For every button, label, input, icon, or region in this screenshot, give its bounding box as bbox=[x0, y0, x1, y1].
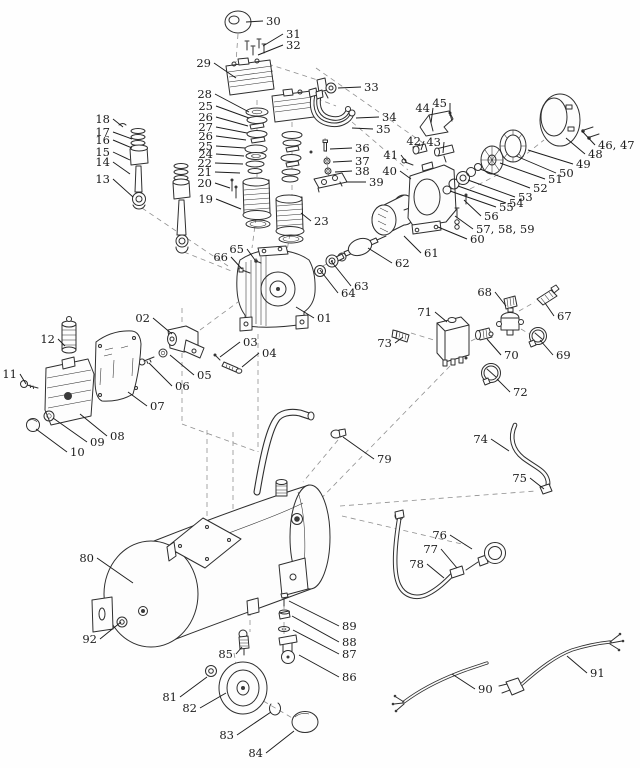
leader-line-70 bbox=[487, 339, 501, 355]
leader-line-10 bbox=[36, 429, 67, 452]
cylinder-head-2-drawing bbox=[272, 89, 314, 122]
part-label-28: 28 bbox=[197, 87, 212, 101]
part-label-44: 44 bbox=[415, 101, 430, 115]
leader-line-48 bbox=[566, 138, 585, 154]
part-label-77: 77 bbox=[423, 542, 438, 556]
leader-line-04 bbox=[242, 353, 259, 367]
motor-housing-drawing bbox=[408, 162, 456, 234]
leader-line-24 bbox=[216, 154, 244, 156]
leader-line-90 bbox=[452, 674, 475, 689]
leader-line-18 bbox=[113, 119, 123, 127]
part-label-29: 29 bbox=[196, 56, 211, 70]
part-label-88: 88 bbox=[342, 635, 357, 649]
outlet-tubes-drawing bbox=[309, 88, 355, 125]
leader-line-69 bbox=[540, 340, 553, 355]
part-label-83: 83 bbox=[219, 728, 234, 742]
leader-line-61 bbox=[404, 236, 421, 253]
part-label-74: 74 bbox=[473, 432, 488, 446]
leader-line-71 bbox=[435, 312, 447, 322]
leader-line-84 bbox=[266, 731, 294, 753]
cylinder-2-drawing bbox=[276, 195, 304, 243]
part-label-69: 69 bbox=[556, 348, 571, 362]
part-label-56: 56 bbox=[484, 209, 499, 223]
leader-line-28 bbox=[215, 94, 249, 112]
leader-line-31 bbox=[263, 34, 283, 46]
part-label-12: 12 bbox=[40, 332, 55, 346]
leader-line-19 bbox=[216, 199, 241, 209]
pin-03-drawing bbox=[214, 354, 221, 361]
stator-lamination-drawing bbox=[481, 146, 503, 174]
part-label-68: 68 bbox=[477, 285, 492, 299]
leader-line-75 bbox=[530, 478, 544, 489]
part-label-06: 06 bbox=[175, 379, 190, 393]
leader-line-15 bbox=[113, 152, 130, 160]
part-label-30: 30 bbox=[266, 14, 281, 28]
manifold-block-drawing bbox=[314, 173, 347, 192]
filter-housing-drawing bbox=[45, 357, 94, 425]
leader-line-79 bbox=[343, 437, 374, 459]
part-label-90: 90 bbox=[478, 682, 493, 696]
part-label-09: 09 bbox=[90, 435, 105, 449]
hub-cap-84-drawing bbox=[292, 712, 318, 733]
part-label-10: 10 bbox=[70, 445, 85, 459]
leader-line-87 bbox=[293, 630, 339, 654]
part-label-92: 92 bbox=[82, 632, 97, 646]
leader-line-88 bbox=[292, 616, 339, 642]
part-label-19: 19 bbox=[198, 192, 213, 206]
part-label-87: 87 bbox=[342, 647, 357, 661]
bolt-04-drawing bbox=[222, 362, 242, 373]
leader-line-89 bbox=[289, 601, 339, 626]
leader-line-35 bbox=[352, 128, 373, 129]
leader-line-16 bbox=[113, 140, 132, 148]
part-label-85: 85 bbox=[218, 647, 233, 661]
part-label-43: 43 bbox=[426, 135, 441, 149]
leader-line-72 bbox=[497, 379, 510, 392]
part-label-80: 80 bbox=[79, 551, 94, 565]
leader-line-57_58_59 bbox=[455, 216, 473, 229]
part-label-32: 32 bbox=[286, 38, 301, 52]
leader-line-60 bbox=[438, 227, 467, 239]
leader-line-26a bbox=[216, 136, 246, 140]
part-label-15: 15 bbox=[95, 145, 110, 159]
leader-line-86 bbox=[299, 655, 339, 677]
part-label-81: 81 bbox=[162, 690, 177, 704]
leader-line-44 bbox=[431, 108, 433, 123]
fan-ring-drawing bbox=[500, 130, 526, 162]
piston-rod-2-drawing bbox=[173, 164, 190, 254]
leader-line-20 bbox=[215, 183, 230, 188]
part-label-72: 72 bbox=[513, 385, 528, 399]
gauge-72-drawing bbox=[482, 364, 501, 386]
part-label-46_47: 46, 47 bbox=[598, 138, 635, 152]
part-label-17: 17 bbox=[95, 125, 110, 139]
part-label-55: 55 bbox=[499, 200, 514, 214]
leader-line-37 bbox=[333, 161, 352, 162]
part-label-82: 82 bbox=[182, 701, 197, 715]
part-label-18: 18 bbox=[95, 112, 110, 126]
exploded-view-diagram: 0102030405060708091011121314151617181920… bbox=[0, 0, 640, 768]
leader-line-06 bbox=[149, 363, 172, 386]
air-filter-element-drawing bbox=[62, 317, 76, 354]
piston-rod-1-drawing bbox=[119, 124, 148, 210]
leader-line-77 bbox=[441, 549, 457, 568]
leader-line-25a bbox=[216, 146, 245, 148]
leader-line-14 bbox=[113, 162, 130, 174]
part-label-40: 40 bbox=[382, 164, 397, 178]
valve-plate-stack-2-drawing bbox=[281, 132, 302, 183]
leader-line-78 bbox=[427, 564, 444, 578]
leader-line-53 bbox=[468, 180, 515, 197]
leader-line-32 bbox=[258, 45, 283, 55]
part-label-78: 78 bbox=[409, 557, 424, 571]
leader-line-46_47 bbox=[582, 131, 595, 145]
part-label-73: 73 bbox=[377, 336, 392, 350]
leader-line-62 bbox=[368, 248, 392, 263]
leader-line-17 bbox=[113, 132, 132, 139]
part-label-65: 65 bbox=[229, 242, 244, 256]
leader-line-22 bbox=[215, 163, 243, 164]
cylinder-1-drawing bbox=[243, 178, 271, 228]
part-label-60: 60 bbox=[470, 232, 485, 246]
leader-line-83 bbox=[237, 712, 271, 735]
washer-87-drawing bbox=[279, 627, 290, 632]
leader-line-85 bbox=[236, 647, 242, 654]
part-label-71: 71 bbox=[417, 305, 432, 319]
leader-line-33 bbox=[338, 87, 361, 88]
part-label-67: 67 bbox=[557, 309, 572, 323]
part-label-89: 89 bbox=[342, 619, 357, 633]
leader-line-36 bbox=[330, 148, 352, 149]
part-label-23: 23 bbox=[314, 214, 329, 228]
cap-10-drawing bbox=[27, 419, 40, 432]
leader-line-27 bbox=[216, 127, 247, 133]
part-label-79: 79 bbox=[377, 452, 392, 466]
pressure-switch-drawing bbox=[437, 317, 469, 366]
leader-line-56 bbox=[464, 200, 481, 216]
leader-line-63 bbox=[331, 261, 351, 286]
part-label-03: 03 bbox=[243, 335, 258, 349]
part-label-57_58_59: 57, 58, 59 bbox=[476, 222, 535, 236]
leader-line-76 bbox=[450, 535, 472, 549]
part-label-05: 05 bbox=[197, 368, 212, 382]
part-label-52: 52 bbox=[533, 181, 548, 195]
nut-88-drawing bbox=[279, 610, 290, 619]
leader-line-08 bbox=[80, 414, 107, 436]
part-label-08: 08 bbox=[110, 429, 125, 443]
part-label-62: 62 bbox=[395, 256, 410, 270]
leader-line-67 bbox=[545, 303, 554, 316]
unloader-valve-drawing bbox=[168, 326, 205, 358]
part-label-45: 45 bbox=[432, 96, 447, 110]
part-label-33: 33 bbox=[364, 80, 379, 94]
exploded-view-artwork bbox=[21, 11, 625, 733]
part-label-36: 36 bbox=[355, 141, 370, 155]
part-label-25b: 25 bbox=[198, 99, 213, 113]
part-label-84: 84 bbox=[248, 746, 263, 760]
fitting-70-drawing bbox=[476, 328, 494, 340]
part-label-70: 70 bbox=[504, 348, 519, 362]
part-label-91: 91 bbox=[590, 666, 605, 680]
leader-line-25b bbox=[216, 106, 249, 118]
part-label-61: 61 bbox=[424, 246, 439, 260]
part-label-64: 64 bbox=[341, 286, 356, 300]
part-label-07: 07 bbox=[150, 399, 165, 413]
bearing-63-drawing bbox=[326, 255, 338, 267]
filter-plate-drawing bbox=[95, 331, 141, 401]
part-label-02: 02 bbox=[135, 311, 150, 325]
part-label-49: 49 bbox=[576, 157, 591, 171]
leader-line-26b bbox=[216, 117, 248, 126]
part-label-86: 86 bbox=[342, 670, 357, 684]
leader-line-09 bbox=[53, 418, 87, 442]
part-label-35: 35 bbox=[376, 122, 391, 136]
leader-line-91 bbox=[567, 656, 587, 673]
leader-line-02 bbox=[153, 318, 172, 334]
leader-line-52 bbox=[480, 169, 530, 188]
part-label-01: 01 bbox=[317, 311, 332, 325]
part-label-41: 41 bbox=[383, 148, 398, 162]
retaining-ring-83-drawing bbox=[270, 703, 281, 715]
regulator-drawing bbox=[497, 296, 524, 335]
leader-line-40 bbox=[400, 171, 411, 179]
part-label-66: 66 bbox=[213, 250, 228, 264]
leader-line-55 bbox=[450, 191, 496, 207]
leader-line-64 bbox=[320, 270, 338, 293]
leader-line-74 bbox=[491, 439, 509, 451]
diagram-page: 0102030405060708091011121314151617181920… bbox=[0, 0, 640, 768]
washer-81-drawing bbox=[206, 666, 217, 677]
part-label-76: 76 bbox=[432, 528, 447, 542]
power-cord-91-drawing bbox=[499, 633, 624, 695]
plug-79-drawing bbox=[331, 429, 346, 438]
screw-41-drawing bbox=[402, 159, 413, 165]
fitting-73-drawing bbox=[392, 330, 409, 342]
part-label-13: 13 bbox=[95, 172, 110, 186]
leader-line-21 bbox=[215, 172, 240, 173]
leader-line-03 bbox=[220, 342, 240, 357]
leader-line-49 bbox=[528, 150, 573, 164]
drain-valve-drawing bbox=[239, 630, 249, 655]
leader-line-38 bbox=[335, 171, 352, 172]
caster-86-drawing bbox=[279, 635, 297, 664]
head-stud-bolts-drawing bbox=[231, 179, 238, 199]
part-label-63: 63 bbox=[354, 279, 369, 293]
leader-line-81 bbox=[180, 677, 207, 697]
bolt-06-drawing bbox=[139, 357, 154, 365]
leader-line-34 bbox=[356, 117, 379, 118]
washer-05-drawing bbox=[159, 349, 167, 357]
leader-line-13 bbox=[113, 179, 133, 197]
part-label-04: 04 bbox=[262, 346, 277, 360]
motor-end-cap-drawing bbox=[540, 94, 599, 146]
crankcase-pump-body-drawing bbox=[237, 246, 315, 331]
wheel-82-drawing bbox=[219, 662, 267, 714]
fitting-67-drawing bbox=[537, 285, 559, 305]
leader-line-07 bbox=[128, 392, 147, 406]
part-label-38: 38 bbox=[355, 164, 370, 178]
quick-coupler-76-drawing bbox=[466, 543, 506, 571]
part-label-75: 75 bbox=[512, 471, 527, 485]
part-label-11: 11 bbox=[2, 367, 17, 381]
part-label-51: 51 bbox=[548, 172, 563, 186]
bolt-11-drawing bbox=[21, 381, 39, 389]
part-label-42: 42 bbox=[406, 134, 421, 148]
